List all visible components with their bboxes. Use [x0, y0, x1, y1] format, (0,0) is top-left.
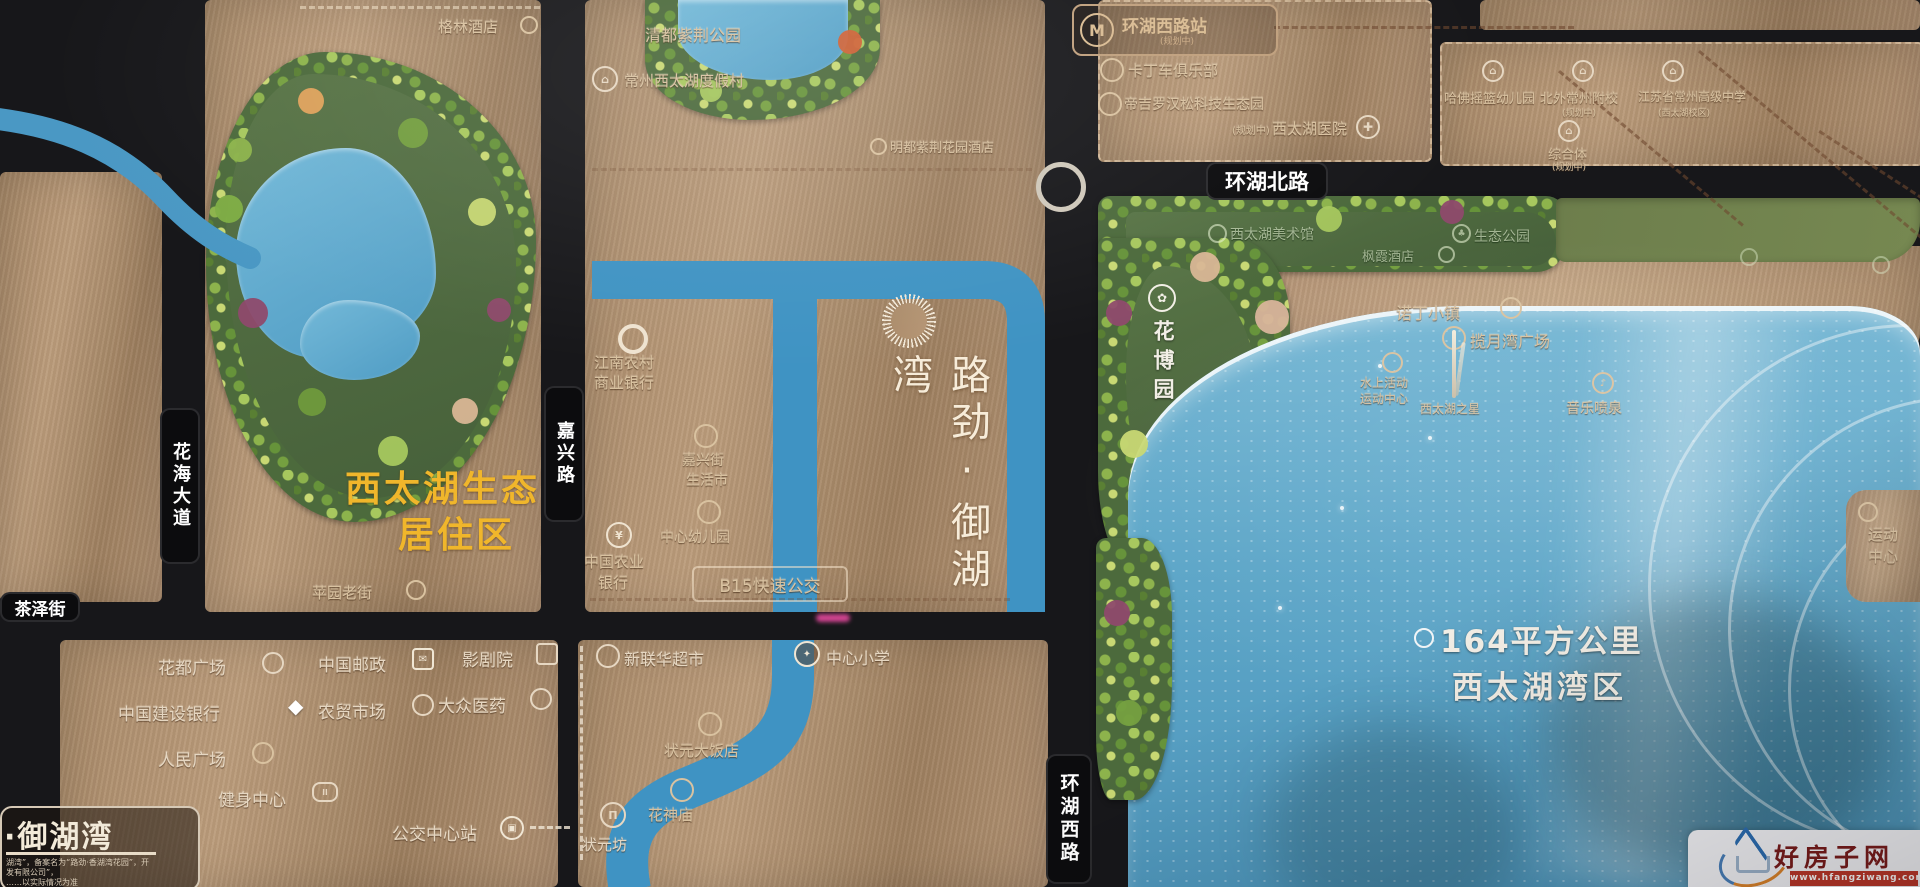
- school-a-note: (规划中): [1562, 106, 1596, 119]
- poi-theater: 影剧院: [462, 646, 513, 671]
- brt-label: B15快速公交: [719, 572, 820, 597]
- project-name: 路劲·御湖湾: [880, 354, 996, 600]
- metro-icon: M: [1080, 13, 1114, 47]
- poi-fitness-center: 健身中心: [218, 786, 286, 811]
- hospital-cross-icon: ✚: [1356, 115, 1380, 139]
- museum-icon: [1208, 224, 1227, 243]
- restaurant-icon: [698, 712, 722, 736]
- project-sunburst-icon: [882, 294, 936, 348]
- poi-farmers-market: 农贸市场: [318, 698, 386, 723]
- complex-note: (规划中): [1552, 160, 1586, 173]
- stage-line1: 水上活动: [1360, 374, 1408, 391]
- karting-label: 卡丁车俱乐部: [1128, 60, 1218, 81]
- far-green-icon-1: [1740, 248, 1758, 266]
- stage-icon: [1382, 352, 1403, 373]
- rural-bank-icon: [618, 324, 648, 354]
- logo-fine-print-2: 发有限公司”，: [6, 868, 58, 878]
- post-icon: ✉: [412, 648, 434, 670]
- resort-label: 常州西太湖度假村: [624, 70, 744, 91]
- roundabout: [1036, 162, 1086, 212]
- moon-bay-plaza-label: 揽月湾广场: [1470, 328, 1550, 352]
- residential-title-line1: 西太湖生态: [345, 460, 540, 512]
- school-b-icon: ⌂: [1662, 60, 1684, 82]
- peoples-square-icon: [252, 742, 274, 764]
- logo-fine-print-1: 湖湾”，备案名为“路劲·香湖湾花园”，开: [6, 858, 149, 868]
- metro-station-plate: M 环湖西路站 (规划中): [1072, 4, 1278, 56]
- central-kindergarten-label: 中心幼儿园: [660, 527, 730, 547]
- ccb-icon: ◆: [288, 694, 303, 718]
- old-street-icon: [406, 580, 426, 600]
- green-hotel-icon: [520, 16, 538, 34]
- road-label-huahai: 花海大道: [162, 410, 198, 562]
- garden-hotel-icon: [870, 138, 887, 155]
- lake-area-label: 164平方公里: [1440, 616, 1643, 661]
- sports-line1: 运动: [1868, 524, 1898, 545]
- kindergarten-label: 哈佛摇篮幼儿园: [1444, 88, 1535, 107]
- town-label: 诺丁小镇: [1396, 300, 1460, 324]
- tech-park-label: 帝吉罗汉松科技生态园: [1124, 94, 1264, 114]
- tech-park-icon: [1098, 92, 1122, 116]
- hospital-label: 西太湖医院: [1272, 118, 1347, 139]
- lakeside-green-south-strip: [1096, 538, 1172, 800]
- logo-fine-print-3: ……以实际情况为准: [6, 878, 78, 887]
- watermark-house-body-icon: [1736, 856, 1770, 873]
- school-a-label: 北外常州附校: [1540, 88, 1618, 107]
- green-hotel-label: 格林酒店: [438, 16, 498, 37]
- abc-bank-line1: 中国农业: [584, 551, 644, 572]
- archway-icon: Π: [600, 802, 626, 828]
- model-map-board: 茶泽街 花海大道 嘉兴路 环湖北路 环湖西路 M 环湖西路站 (规划中) 格林酒…: [0, 0, 1920, 887]
- eco-park-label: 生态公园: [1474, 226, 1530, 246]
- museum-label: 西太湖美术馆: [1230, 224, 1314, 244]
- watermark-panel: 好房子网 www.hfangziwang.com: [1688, 830, 1920, 887]
- pharmacy-icon: [530, 688, 552, 710]
- rural-bank-line1: 江南农村: [594, 352, 654, 373]
- primary-school-icon: ✦: [794, 641, 820, 667]
- project-logo-panel: ·御湖湾 湖湾”，备案名为“路劲·香湖湾花园”，开 发有限公司”， ……以实际情…: [0, 806, 200, 887]
- plaza-icon: [262, 652, 284, 674]
- school-b-label: 江苏省常州高级中学: [1638, 88, 1746, 105]
- flower-expo-icon: ✿: [1148, 284, 1176, 312]
- west-taihu-lake: [1128, 306, 1920, 887]
- poi-bus-terminal: 公交中心站: [392, 820, 477, 845]
- flower-expo-label: 花博园: [1148, 320, 1178, 442]
- tower-label: 西太湖之星: [1420, 400, 1480, 417]
- residential-title-line2: 居住区: [398, 506, 515, 558]
- fitness-icon: ll: [312, 782, 338, 802]
- lakeside-hotel-label: 枫霞酒店: [1362, 246, 1414, 265]
- poi-temple: 花神庙: [648, 804, 693, 825]
- eco-park-icon: ♣: [1452, 224, 1471, 243]
- logo-rule: [6, 852, 156, 855]
- block-far-west: [0, 172, 162, 602]
- life-market-line1: 嘉兴街: [682, 450, 724, 470]
- temple-icon: [670, 778, 694, 802]
- block-south-center: [578, 640, 1048, 887]
- karting-icon: [1100, 58, 1124, 82]
- sports-icon: [1858, 502, 1878, 522]
- supermarket-icon: [596, 644, 620, 668]
- lake-name-label: 西太湖湾区: [1452, 662, 1627, 707]
- fountain-label: 音乐喷泉: [1566, 398, 1622, 418]
- lakeside-hotel-icon: [1438, 246, 1455, 263]
- town-icon: [1500, 297, 1522, 319]
- kindergarten-icon: ⌂: [1482, 60, 1504, 82]
- road-label-jiaxing: 嘉兴路: [546, 388, 582, 520]
- school-a-icon: ⌂: [1572, 60, 1594, 82]
- poi-huadu-plaza: 花都广场: [158, 654, 226, 679]
- brt-badge: B15快速公交: [692, 566, 848, 602]
- resort-icon: ⌂: [592, 66, 618, 92]
- garden-hotel-label: 明都紫荆花园酒店: [890, 137, 994, 156]
- fountain-icon: ♪: [1592, 372, 1614, 394]
- old-street-label: 苹园老街: [312, 582, 372, 603]
- complex-icon: ⌂: [1558, 120, 1580, 142]
- hospital-note: (规划中): [1232, 122, 1270, 137]
- poi-china-post: 中国邮政: [318, 651, 386, 676]
- road-label-huanhu-north: 环湖北路: [1208, 164, 1326, 198]
- rural-bank-line2: 商业银行: [594, 372, 654, 393]
- metro-station-note: (规划中): [1160, 34, 1194, 47]
- watermark-url: www.hfangziwang.com: [1790, 871, 1918, 886]
- sports-line2: 中心: [1868, 546, 1898, 567]
- poi-restaurant: 状元大饭店: [664, 740, 739, 761]
- lake-area-icon: [1414, 628, 1434, 648]
- market-icon: [412, 694, 434, 716]
- central-kindergarten-icon: [697, 500, 721, 524]
- road-label-chaze: 茶泽街: [2, 594, 78, 620]
- poi-peoples-square: 人民广场: [158, 746, 226, 771]
- abc-bank-line2: 银行: [598, 572, 628, 593]
- abc-bank-icon: ¥: [606, 522, 632, 548]
- far-green-icon-2: [1872, 256, 1890, 274]
- stage-line2: 运动中心: [1360, 390, 1408, 407]
- poi-archway: 状元坊: [582, 834, 627, 855]
- far-green-band: [1556, 198, 1920, 262]
- zijing-park-label: 清都紫荆公园: [645, 22, 741, 46]
- poi-supermarket: 新联华超市: [624, 646, 704, 670]
- school-b-note: (西太湖校区): [1658, 106, 1710, 119]
- road-label-huanhu-west: 环湖西路: [1048, 756, 1090, 882]
- theater-icon: [536, 643, 558, 665]
- bus-icon: ▣: [500, 816, 524, 840]
- life-market-line2: 生活市: [686, 470, 728, 490]
- logo-title: ·御湖湾: [4, 812, 113, 856]
- poi-pharmacy: 大众医药: [438, 692, 506, 717]
- watermark-site-name: 好房子网: [1774, 838, 1894, 874]
- laser-dot: [816, 614, 850, 622]
- poi-primary-school: 中心小学: [826, 645, 890, 669]
- life-market-icon: [694, 424, 718, 448]
- poi-ccb-bank: 中国建设银行: [118, 700, 220, 725]
- metro-route-dashes: [1274, 26, 1574, 29]
